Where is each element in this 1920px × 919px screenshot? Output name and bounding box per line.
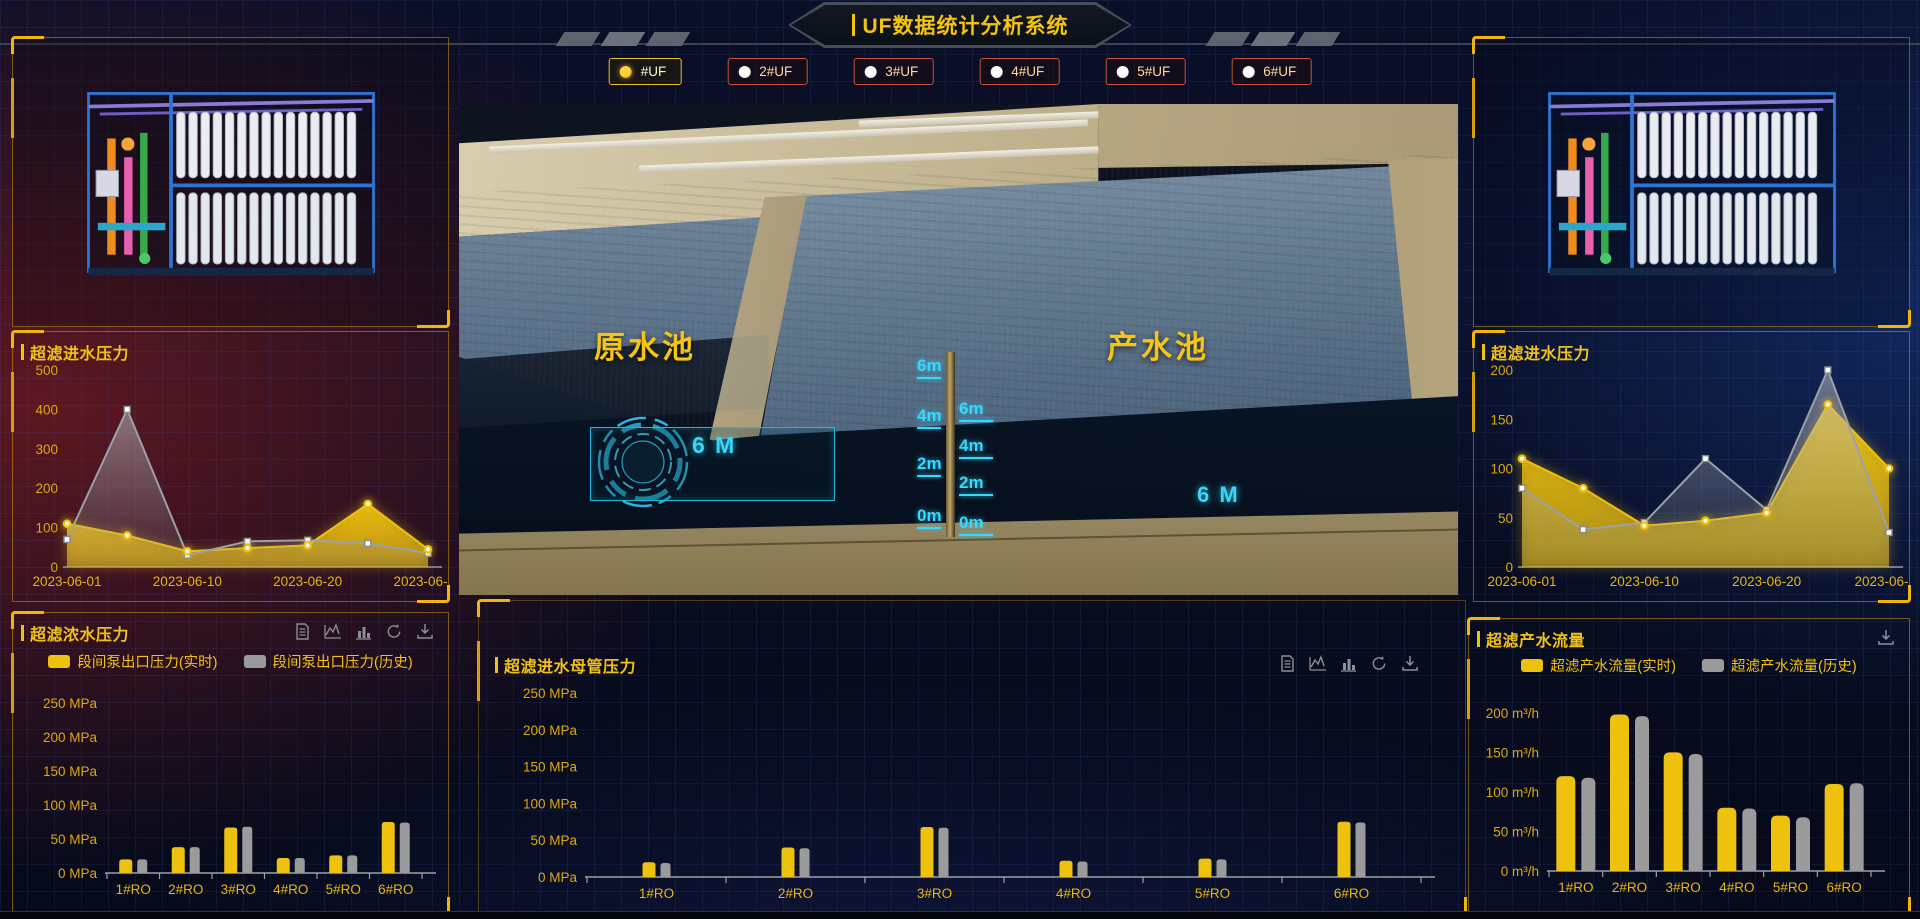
panel-uf-inlet-pressure-left: 超滤进水压力 01002003004005002023-06-012023-06… (12, 331, 449, 602)
x-tick-label: 1#RO (116, 882, 151, 897)
x-tick-label: 2#RO (168, 882, 203, 897)
uf-tab-3#UF[interactable]: 3#UF (853, 58, 933, 85)
level-scale-mark: 4m (959, 437, 993, 459)
product-pool-level-value: 6 M (1197, 482, 1240, 508)
uf-tab-label: 6#UF (1263, 64, 1296, 79)
data-view-icon[interactable] (1279, 655, 1296, 672)
legend-item[interactable]: 段间泵出口压力(实时) (48, 651, 217, 672)
x-tick-label: 2023-06-30 (393, 574, 448, 589)
legend-label: 超滤产水流量(实时) (1550, 655, 1676, 676)
title-emblem: UF数据统计分析系统 (788, 2, 1132, 48)
bar-chart-icon[interactable] (355, 623, 372, 640)
y-tick-label: 50 MPa (530, 833, 577, 848)
chart-title: 超滤进水母管压力 (504, 653, 636, 677)
level-scale-mark: 6m (959, 400, 993, 422)
restore-icon[interactable] (1370, 655, 1388, 672)
y-tick-label: 250 MPa (523, 686, 578, 701)
chart-toolbox (1279, 655, 1419, 672)
chart-uf-inlet-pressure-right[interactable]: 0501001502002023-06-012023-06-102023-06-… (1474, 332, 1909, 601)
x-tick-label: 6#RO (1334, 886, 1369, 901)
uf-skid-image (1484, 48, 1899, 316)
x-tick-label: 3#RO (1666, 880, 1701, 895)
x-tick-label: 1#RO (1558, 880, 1593, 895)
uf-tab-2#UF[interactable]: 2#UF (727, 58, 807, 85)
y-tick-label: 100 MPa (43, 798, 98, 813)
panel-uf-inlet-pressure-right: 超滤进水压力 0501001502002023-06-012023-06-102… (1473, 331, 1910, 602)
uf-unit-selector: #UF 2#UF 3#UF 4#UF 5#UF 6#UF (609, 58, 1312, 85)
y-tick-label: 100 MPa (523, 796, 578, 811)
x-tick-label: 5#RO (1773, 880, 1808, 895)
y-tick-label: 150 MPa (43, 764, 98, 779)
x-tick-label: 5#RO (1195, 886, 1230, 901)
download-icon[interactable] (1877, 629, 1895, 646)
chart-title: 超滤进水压力 (30, 340, 129, 364)
uf-tab-4#UF[interactable]: 4#UF (979, 58, 1059, 85)
legend-swatch (1702, 659, 1724, 672)
level-scale-mark: 4m (917, 407, 942, 429)
chart-toolbox (1877, 629, 1895, 646)
radio-dot-icon (620, 66, 632, 78)
x-tick-label: 4#RO (1719, 880, 1754, 895)
product-pool-label: 产水池 (1107, 322, 1209, 367)
uf-tab-label: #UF (641, 64, 667, 79)
legend-label: 超滤产水流量(历史) (1731, 655, 1857, 676)
data-view-icon[interactable] (294, 623, 311, 640)
y-tick-label: 0 (50, 560, 58, 575)
download-icon[interactable] (416, 623, 434, 640)
chart-title: 超滤进水压力 (1491, 340, 1590, 364)
panel-uf-concentrate-pressure: 超滤浓水压力 段间泵出口压力(实时) 段间泵出口压力(历史) 0 MPa50 M… (12, 612, 449, 914)
y-tick-label: 50 (1498, 511, 1513, 526)
download-icon[interactable] (1401, 655, 1419, 672)
level-scale-mark: 2m (959, 474, 993, 496)
y-tick-label: 200 MPa (523, 723, 578, 738)
x-tick-label: 5#RO (326, 882, 361, 897)
radio-dot-icon (864, 66, 876, 78)
title-tick (852, 14, 855, 36)
x-tick-label: 2023-06-01 (32, 574, 101, 589)
uf-tab-label: 3#UF (885, 64, 918, 79)
y-tick-label: 0 MPa (538, 870, 578, 885)
uf-tab-6#UF[interactable]: 6#UF (1231, 58, 1311, 85)
y-tick-label: 0 (1505, 560, 1513, 575)
uf-tab-5#UF[interactable]: 5#UF (1105, 58, 1185, 85)
legend-swatch (48, 655, 70, 668)
panel-uf-product-flow: 超滤产水流量 超滤产水流量(实时) 超滤产水流量(历史) 0 m³/h50 m³… (1468, 618, 1910, 914)
y-tick-label: 150 m³/h (1486, 745, 1539, 760)
restore-icon[interactable] (385, 623, 403, 640)
x-tick-label: 2023-06-10 (1610, 574, 1679, 589)
uf-skid-graphic (81, 80, 381, 285)
chart-legend: 段间泵出口压力(实时) 段间泵出口压力(历史) (13, 651, 448, 672)
bar-chart-icon[interactable] (1340, 655, 1357, 672)
y-tick-label: 50 MPa (50, 832, 97, 847)
uf-skid-graphic (1542, 80, 1842, 285)
x-tick-label: 6#RO (1827, 880, 1862, 895)
page-title: UF数据统计分析系统 (863, 10, 1069, 40)
x-tick-label: 2023-06-30 (1854, 574, 1909, 589)
x-tick-label: 2023-06-20 (273, 574, 342, 589)
radio-dot-icon (738, 66, 750, 78)
uf-skid-image (23, 48, 438, 316)
level-scale-mark: 0m (959, 514, 993, 536)
line-chart-icon[interactable] (324, 623, 342, 640)
bottom-status-strip (0, 911, 1920, 919)
uf-tab-label: 2#UF (759, 64, 792, 79)
panel-uf-inlet-header-pressure: 超滤进水母管压力 0 MPa50 MPa100 MPa150 MPa200 MP… (478, 600, 1466, 914)
chart-title: 超滤浓水压力 (30, 621, 129, 645)
panel-uf-skid-right (1473, 37, 1910, 327)
y-tick-label: 500 (35, 363, 58, 378)
line-chart-icon[interactable] (1309, 655, 1327, 672)
panel-uf-skid-left (12, 37, 449, 327)
y-tick-label: 100 (35, 521, 58, 536)
y-tick-label: 150 MPa (523, 760, 578, 775)
y-tick-label: 50 m³/h (1493, 824, 1539, 839)
x-tick-label: 1#RO (639, 886, 674, 901)
x-tick-label: 2#RO (778, 886, 813, 901)
uf-tab-#UF[interactable]: #UF (609, 58, 682, 85)
legend-label: 段间泵出口压力(历史) (273, 651, 413, 672)
chart-title: 超滤产水流量 (1486, 627, 1585, 651)
x-tick-label: 4#RO (1056, 886, 1091, 901)
raw-pool-label: 原水池 (594, 322, 696, 367)
chart-uf-inlet-header-pressure[interactable]: 0 MPa50 MPa100 MPa150 MPa200 MPa250 MPa1… (479, 601, 1465, 913)
y-tick-label: 200 (1490, 363, 1513, 378)
y-tick-label: 300 (35, 442, 58, 457)
legend-item[interactable]: 超滤产水流量(实时) (1521, 655, 1676, 676)
x-tick-label: 4#RO (273, 882, 308, 897)
y-tick-label: 400 (35, 402, 58, 417)
level-scale-mark: 0m (917, 507, 942, 529)
uf-tab-label: 5#UF (1137, 64, 1170, 79)
radio-dot-icon (990, 66, 1002, 78)
x-tick-label: 3#RO (221, 882, 256, 897)
y-tick-label: 0 m³/h (1501, 864, 1539, 879)
radio-dot-icon (1116, 66, 1128, 78)
y-tick-label: 250 MPa (43, 696, 98, 711)
level-scale-mark: 6m (917, 357, 942, 379)
legend-item[interactable]: 超滤产水流量(历史) (1702, 655, 1857, 676)
x-tick-label: 2023-06-01 (1487, 574, 1556, 589)
x-tick-label: 3#RO (917, 886, 952, 901)
y-tick-label: 150 (1490, 412, 1513, 427)
legend-swatch (244, 655, 266, 668)
chart-legend: 超滤产水流量(实时) 超滤产水流量(历史) (1469, 655, 1909, 676)
y-tick-label: 0 MPa (58, 866, 98, 881)
x-tick-label: 2023-06-20 (1732, 574, 1801, 589)
raw-pool-level-value: 6 M (692, 432, 736, 459)
y-tick-label: 200 MPa (43, 730, 98, 745)
y-tick-label: 100 m³/h (1486, 785, 1539, 800)
legend-swatch (1521, 659, 1543, 672)
x-tick-label: 2#RO (1612, 880, 1647, 895)
y-tick-label: 200 (35, 481, 58, 496)
x-tick-label: 2023-06-10 (153, 574, 222, 589)
y-tick-label: 100 (1490, 462, 1513, 477)
uf-tab-label: 4#UF (1011, 64, 1044, 79)
level-staff (946, 352, 955, 537)
legend-label: 段间泵出口压力(实时) (77, 651, 217, 672)
radio-dot-icon (1242, 66, 1254, 78)
water-pools-3d-scene: 原水池 产水池 6 M 6 M 6m4m2m0m 6m4m2m0m (459, 104, 1458, 595)
x-tick-label: 6#RO (378, 882, 413, 897)
level-scale-mark: 2m (917, 455, 942, 477)
chart-toolbox (294, 623, 434, 640)
legend-item[interactable]: 段间泵出口压力(历史) (244, 651, 413, 672)
chart-uf-inlet-pressure-left[interactable]: 01002003004005002023-06-012023-06-102023… (13, 332, 448, 601)
y-tick-label: 200 m³/h (1486, 706, 1539, 721)
